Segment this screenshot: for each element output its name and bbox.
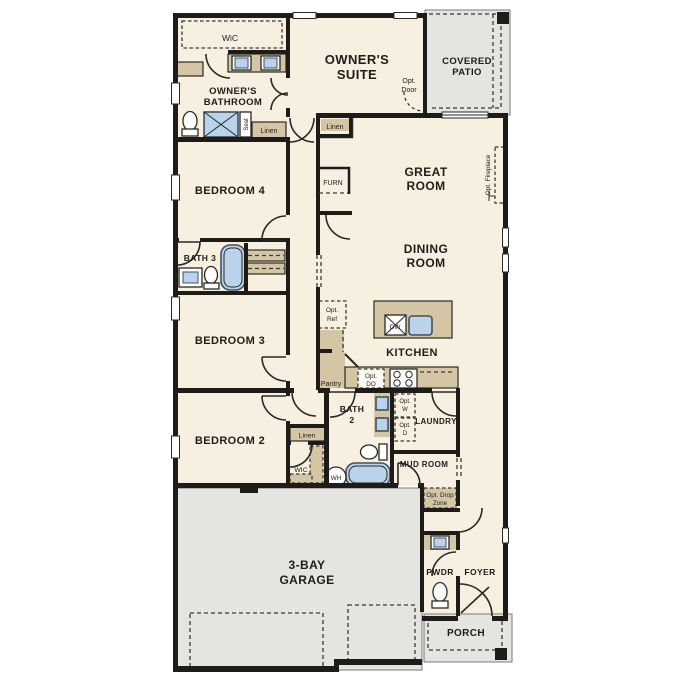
label-bath2-1: BATH (340, 404, 365, 414)
label-bath2-2: 2 (349, 415, 354, 425)
window-greatroom-1 (503, 228, 509, 247)
wall-garage-bottom (173, 666, 338, 672)
label-linen-bath: Linen (260, 128, 277, 135)
label-wic-bed2: WIC (294, 467, 307, 474)
window-suite-2 (394, 13, 417, 19)
owners-sink-1 (235, 58, 248, 68)
window-bedroom3 (172, 297, 180, 320)
label-owners-wic: WiC (222, 33, 238, 43)
wall-wic-suite (286, 13, 290, 78)
porch-post (495, 648, 507, 660)
label-opt-fireplace: Opt. Fireplace (485, 154, 492, 195)
wall-right-exterior (503, 247, 508, 254)
wall-nook-bath2 (324, 392, 329, 486)
label-opt-d-2: D (403, 431, 408, 437)
wall-garage-top (173, 483, 398, 488)
wall-right-exterior (503, 543, 508, 621)
wall-garage-right (420, 486, 424, 612)
wall-foyer-inner (456, 531, 460, 550)
bath2-toilet-tank (379, 444, 387, 460)
owners-toilet-bowl (183, 112, 197, 131)
label-owners-bathroom-2: BATHROOM (204, 97, 262, 108)
label-opt-do-2: DO (366, 381, 376, 388)
patio-post (497, 12, 509, 24)
owners-sink-2 (264, 58, 277, 68)
label-opt-do-1: Opt. (365, 373, 377, 380)
floor-plan-drawing: WiC OWNER'S BATHROOM OWNER'S SUITE Opt. … (0, 0, 687, 687)
label-garage-2: GARAGE (279, 573, 334, 587)
window-suite-1 (293, 13, 316, 19)
label-dining-room-2: ROOM (407, 256, 446, 270)
label-drop-zone-2: Zone (433, 500, 448, 507)
wall-suite-patio (423, 13, 427, 118)
wall-tub-shelf (244, 243, 248, 293)
wall-bedwing (286, 142, 290, 215)
label-water-heater: WH (331, 475, 342, 482)
pwdr-toilet-bowl (433, 583, 447, 602)
bath2-toilet-bowl (361, 445, 378, 459)
bath3-sink (183, 272, 198, 283)
label-mud-room: MUD ROOM (400, 460, 449, 469)
wall-bedwing (286, 421, 290, 486)
wall-dropzone-bottom (422, 508, 460, 512)
bath2-sink-1 (376, 397, 388, 410)
window-greatroom-2 (503, 254, 509, 272)
wall-linen2-top (288, 424, 329, 428)
wic-bench (177, 62, 203, 76)
wic2-shelf-bottom (290, 474, 312, 483)
label-seat: Seat (244, 118, 250, 131)
window-foyer (503, 528, 509, 543)
label-porch: PORCH (447, 628, 485, 639)
label-pantry: Pantry (321, 381, 342, 388)
kitchen-cabinet (319, 330, 344, 352)
bath3-toilet-bowl (205, 267, 218, 284)
wall-linen-hall-right (349, 116, 352, 137)
label-great-room-1: GREAT (404, 165, 447, 179)
floor-plan-page: WiC OWNER'S BATHROOM OWNER'S SUITE Opt. … (0, 0, 687, 687)
wall-bath2-laundry (390, 390, 394, 483)
label-foyer: FOYER (464, 567, 495, 577)
window-owners-bath (172, 83, 180, 104)
label-drop-zone-1: Opt. Drop (426, 492, 454, 499)
wall-right-exterior (503, 113, 508, 228)
label-owners-suite-2: SUITE (337, 67, 377, 82)
label-laundry: LAUNDRY (415, 417, 457, 426)
label-opt-w-1: Opt. (399, 399, 411, 405)
window-bedroom2 (172, 436, 180, 458)
label-kitchen: KITCHEN (386, 347, 438, 359)
label-opt-ref-1: Opt. (326, 307, 338, 314)
wall-garage-bottom (334, 659, 422, 665)
pwdr-toilet-tank (432, 601, 448, 608)
label-furnace: FURN (323, 180, 342, 187)
label-opt-d-1: Opt. (399, 423, 411, 429)
wall-bedwing (286, 240, 290, 355)
label-dining-room-1: DINING (404, 242, 448, 256)
pwdr-sink (434, 538, 446, 547)
wall-pwdr-top (422, 531, 460, 535)
label-garage-1: 3-BAY (289, 558, 326, 572)
wall-laundry-bottom (390, 450, 460, 454)
wall-wic-divider (228, 50, 288, 54)
wall-bed3-bottom (173, 388, 290, 393)
wall-hall-right (316, 287, 320, 390)
wall-bedwing (286, 381, 290, 396)
label-bedroom3: BEDROOM 3 (195, 335, 265, 347)
wall-bed4-top (173, 137, 290, 142)
label-covered-patio-2: PATIO (452, 67, 482, 78)
wall-left-exterior (173, 13, 178, 672)
window-bedroom4 (172, 175, 180, 200)
label-opt-w-2: W (402, 407, 408, 413)
label-linen-bed2: Linen (299, 433, 316, 440)
island-sink (409, 316, 432, 335)
wall-right-exterior (503, 272, 508, 528)
wall-pantry-stub (320, 349, 332, 353)
label-covered-patio-1: COVERED (442, 56, 492, 67)
label-opt-ref-2: Ref (327, 316, 337, 323)
label-great-room-2: ROOM (407, 179, 446, 193)
label-opt-door-1: Opt. (402, 78, 415, 85)
label-owners-suite-1: OWNER'S (325, 52, 389, 67)
wall-foyer-inner (456, 486, 460, 506)
wall-foyer-inner (456, 576, 460, 616)
wall-foyer-bottom (422, 616, 458, 621)
bath2-sink-2 (376, 418, 388, 431)
wall-wic-suite (286, 108, 290, 117)
owners-toilet-tank (182, 129, 198, 136)
wall-furn-stub (318, 211, 352, 215)
wall-bath3-bottom (173, 291, 290, 295)
label-bath3: BATH 3 (184, 253, 216, 263)
label-bedroom4: BEDROOM 4 (195, 185, 266, 197)
bath3-toilet-tank (204, 283, 219, 289)
wall-linen-hall-bottom (318, 134, 352, 137)
wall-garage-nub (240, 488, 258, 493)
label-dishwasher: DW (390, 324, 402, 331)
wall-garage-step (334, 659, 339, 672)
label-linen-hall: Linen (326, 124, 343, 131)
label-opt-door-2: Door (401, 87, 417, 94)
label-powder: PWDR (426, 567, 454, 577)
label-owners-bathroom-1: OWNER'S (209, 86, 257, 97)
label-bedroom2: BEDROOM 2 (195, 435, 265, 447)
